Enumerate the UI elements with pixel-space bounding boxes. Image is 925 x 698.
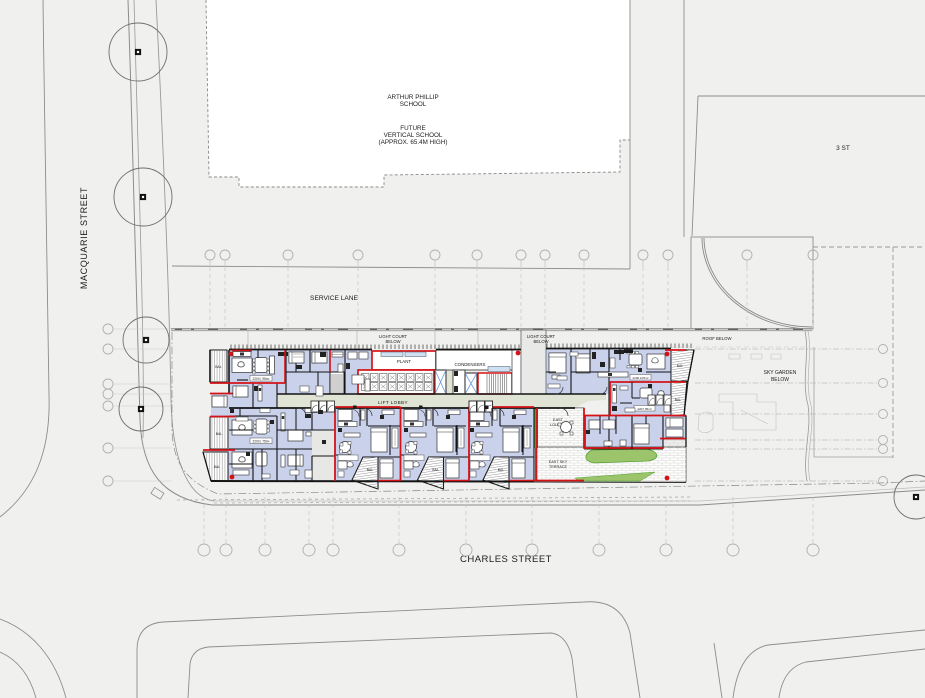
svg-text:LIFT LOBBY: LIFT LOBBY <box>378 400 408 405</box>
svg-text:ROOF BELOW: ROOF BELOW <box>702 336 732 341</box>
svg-text:(APPROX. 65.4M HIGH): (APPROX. 65.4M HIGH) <box>379 139 448 146</box>
svg-text:BAL: BAL <box>675 398 682 402</box>
svg-text:2207 95m²: 2207 95m² <box>637 407 651 411</box>
svg-text:PLANT: PLANT <box>397 359 411 364</box>
svg-text:EAST SKY: EAST SKY <box>549 460 568 464</box>
svg-text:BAL: BAL <box>215 365 222 369</box>
svg-text:ARTHUR PHILLIP: ARTHUR PHILLIP <box>387 94 438 101</box>
svg-text:BAL: BAL <box>498 468 505 472</box>
svg-text:BAL: BAL <box>432 468 439 472</box>
svg-text:BELOW: BELOW <box>385 339 400 344</box>
svg-text:BAL: BAL <box>216 432 223 436</box>
svg-text:2200 | 75m²: 2200 | 75m² <box>253 439 270 443</box>
svg-text:CONDENSERS: CONDENSERS <box>455 362 486 367</box>
svg-text:FUTURE: FUTURE <box>400 125 426 132</box>
svg-text:TERRACE: TERRACE <box>549 465 568 469</box>
svg-text:MACQUARIE STREET: MACQUARIE STREET <box>79 187 89 289</box>
svg-text:BELOW: BELOW <box>771 377 789 383</box>
svg-text:SCHOOL: SCHOOL <box>400 101 427 108</box>
svg-text:CHARLES STREET: CHARLES STREET <box>460 554 552 565</box>
svg-text:SERVICE LANE: SERVICE LANE <box>310 295 358 302</box>
svg-text:2200 105m²: 2200 105m² <box>632 376 648 380</box>
svg-text:BAL: BAL <box>677 364 684 368</box>
svg-text:EAST: EAST <box>553 418 564 422</box>
svg-text:2200 | 95m²: 2200 | 95m² <box>253 377 270 381</box>
svg-text:VERTICAL SCHOOL: VERTICAL SCHOOL <box>384 132 443 139</box>
svg-text:BAL: BAL <box>367 468 374 472</box>
svg-text:3 ST: 3 ST <box>836 145 850 152</box>
svg-text:SKY GARDEN: SKY GARDEN <box>764 370 797 376</box>
svg-text:BELOW: BELOW <box>533 339 548 344</box>
svg-text:BAL: BAL <box>214 465 221 469</box>
